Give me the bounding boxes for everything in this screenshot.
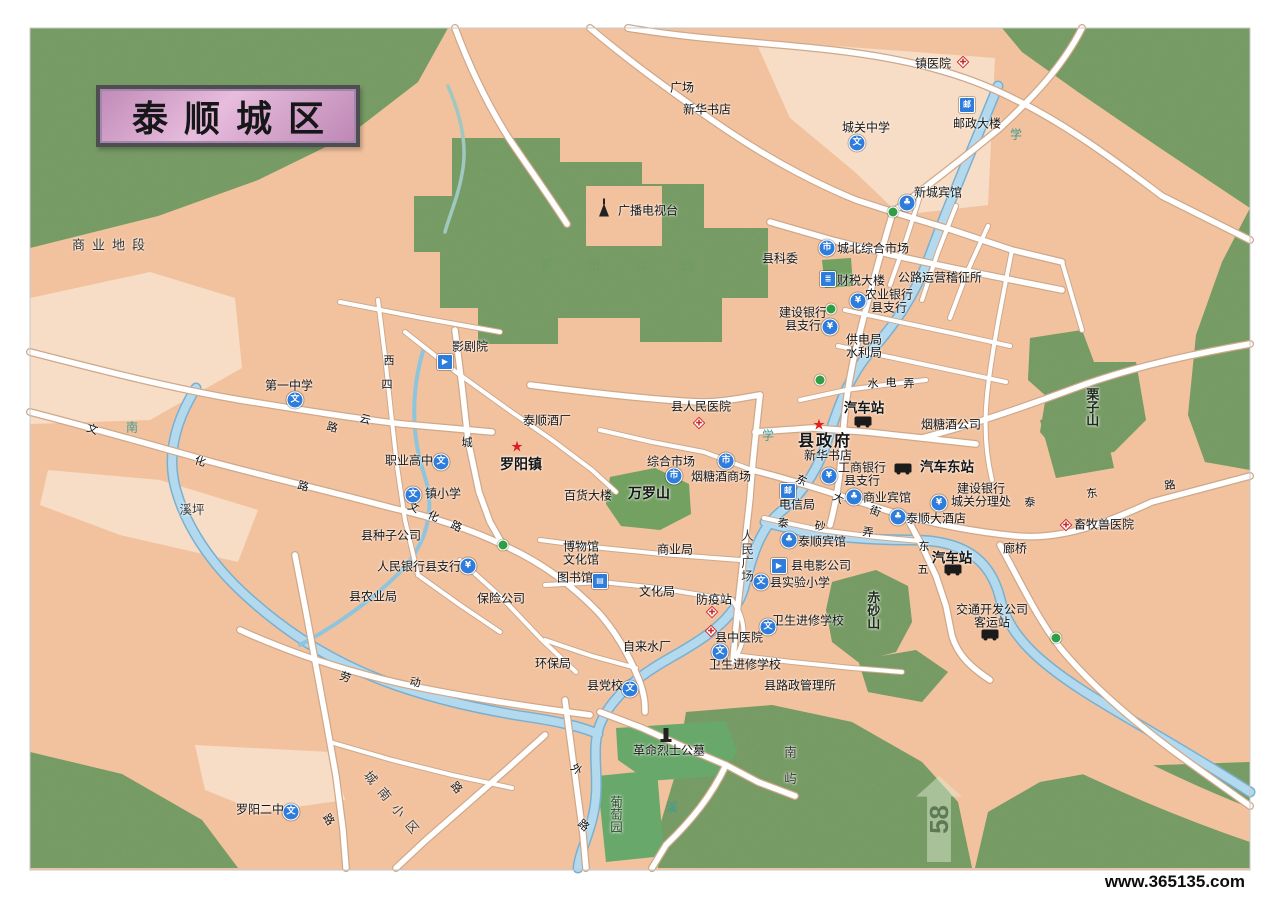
map-title: 泰顺城区 — [96, 85, 360, 147]
watermark-link[interactable]: www.365135.com — [1105, 872, 1245, 892]
page: { "title": { "text": "泰顺城区" }, "page_mar… — [0, 0, 1279, 899]
page-number: 58 — [924, 805, 955, 834]
